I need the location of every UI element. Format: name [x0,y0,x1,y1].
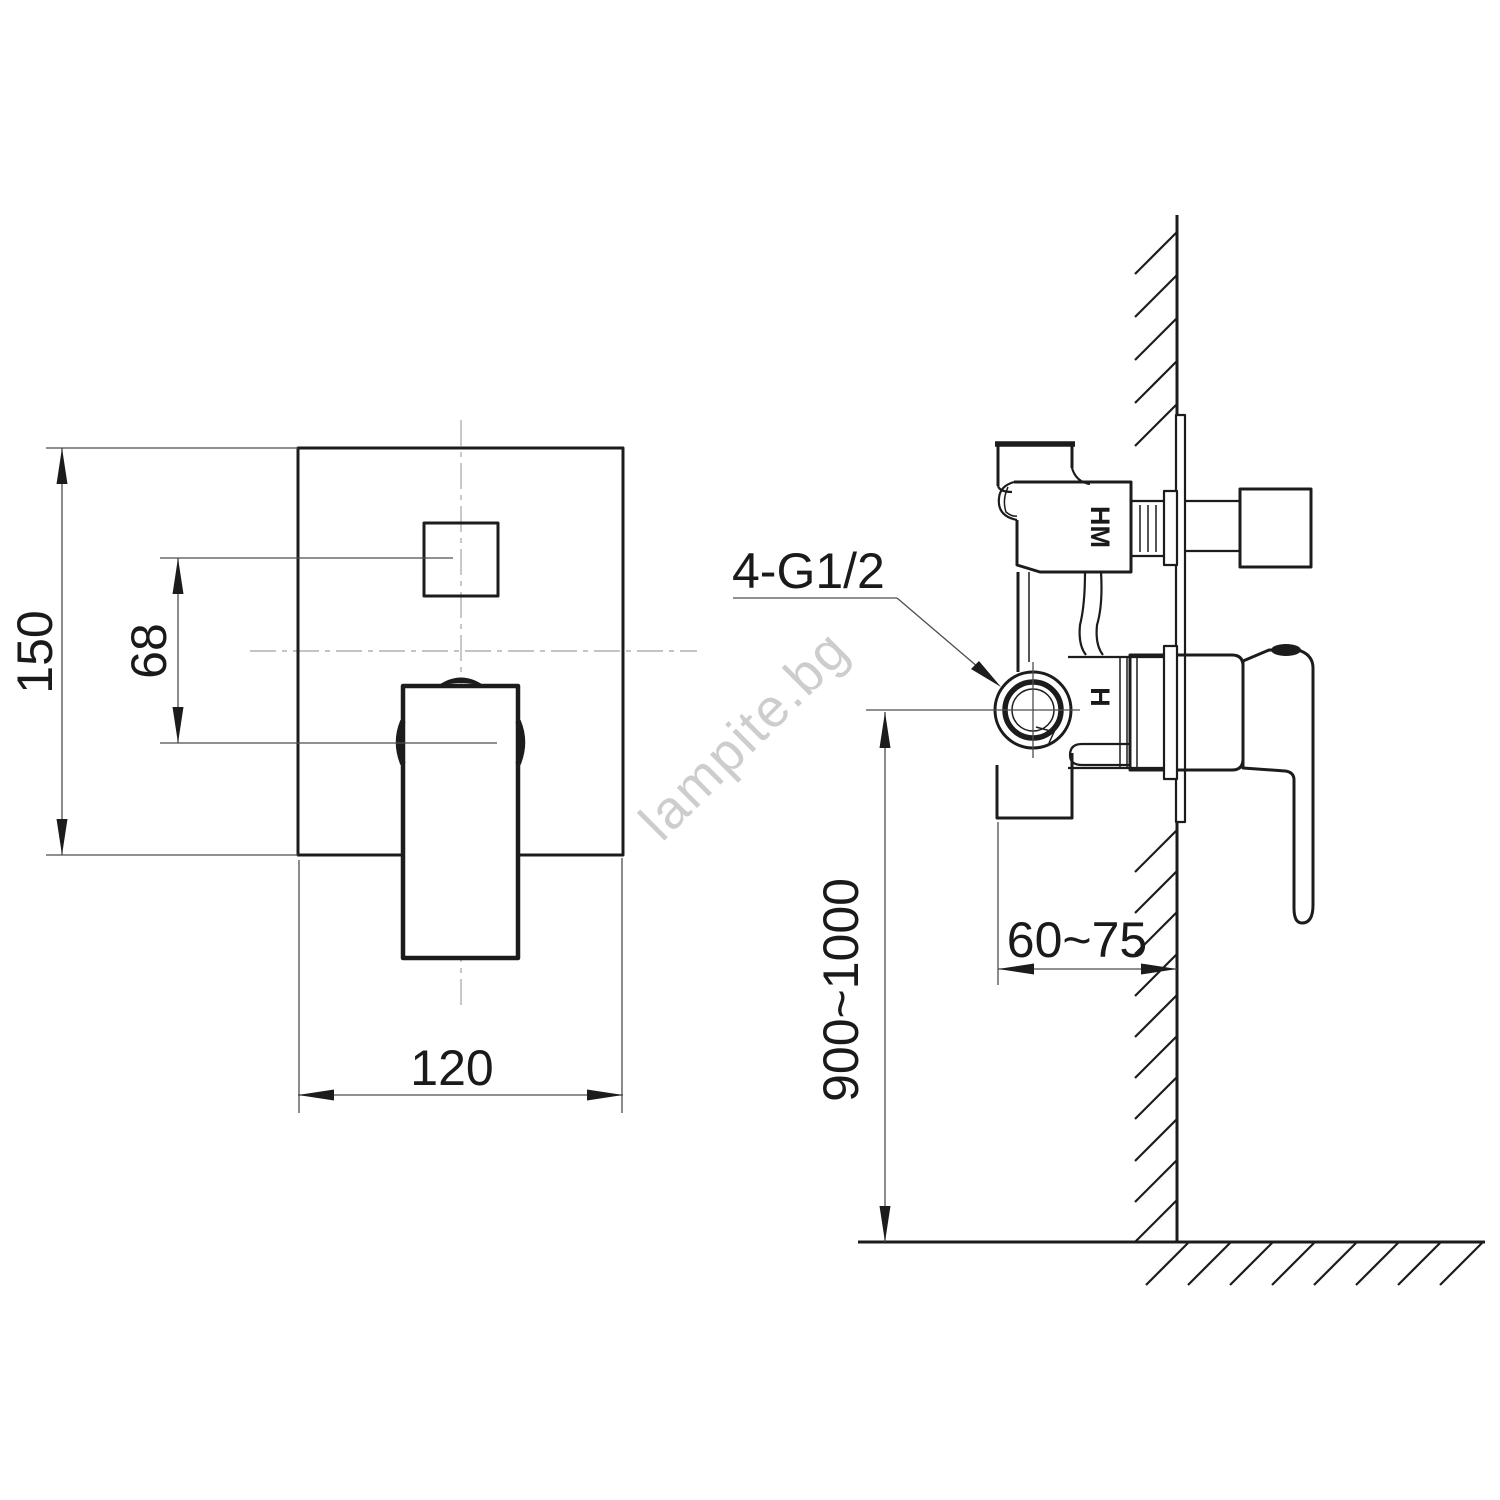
floor-hatching [1146,1243,1482,1285]
dimension-depth: 60~75 [998,822,1177,985]
valve-body-upper: HM [995,444,1311,572]
diverter-knob-side [1240,489,1311,567]
hm-port-label: HM [1085,506,1115,548]
h-port-label: H [1085,687,1115,707]
dimension-mount-height: 900~1000 [813,710,1080,1242]
wall-hatching-upper [1135,232,1177,446]
lever-top-cap [1271,644,1301,656]
dimension-120: 120 [298,1040,623,1101]
escutcheon-flange [1164,646,1177,779]
front-handle [403,686,518,958]
watermark-text: lampite.bg [628,619,861,852]
shower-mixer-installation-drawing: lampite.bg 150 68 [0,0,1500,1500]
dim-120-label: 120 [410,1040,493,1096]
lever-handle-side [1243,650,1313,923]
dim-mount-height-label: 900~1000 [813,878,869,1102]
side-view: HM H [732,215,1485,1285]
dim-68-label: 68 [121,623,177,679]
dimension-68: 68 [121,558,184,743]
wall-hatching-lower [1135,830,1177,1242]
front-view: 150 68 120 [7,420,697,1113]
dimension-150: 150 [7,448,68,855]
handle-side [1130,644,1313,923]
technical-drawing-page: lampite.bg 150 68 [0,0,1500,1500]
dim-depth-label: 60~75 [1007,912,1147,968]
thread-callout-label: 4-G1/2 [732,543,885,599]
dim-150-label: 150 [7,610,63,693]
